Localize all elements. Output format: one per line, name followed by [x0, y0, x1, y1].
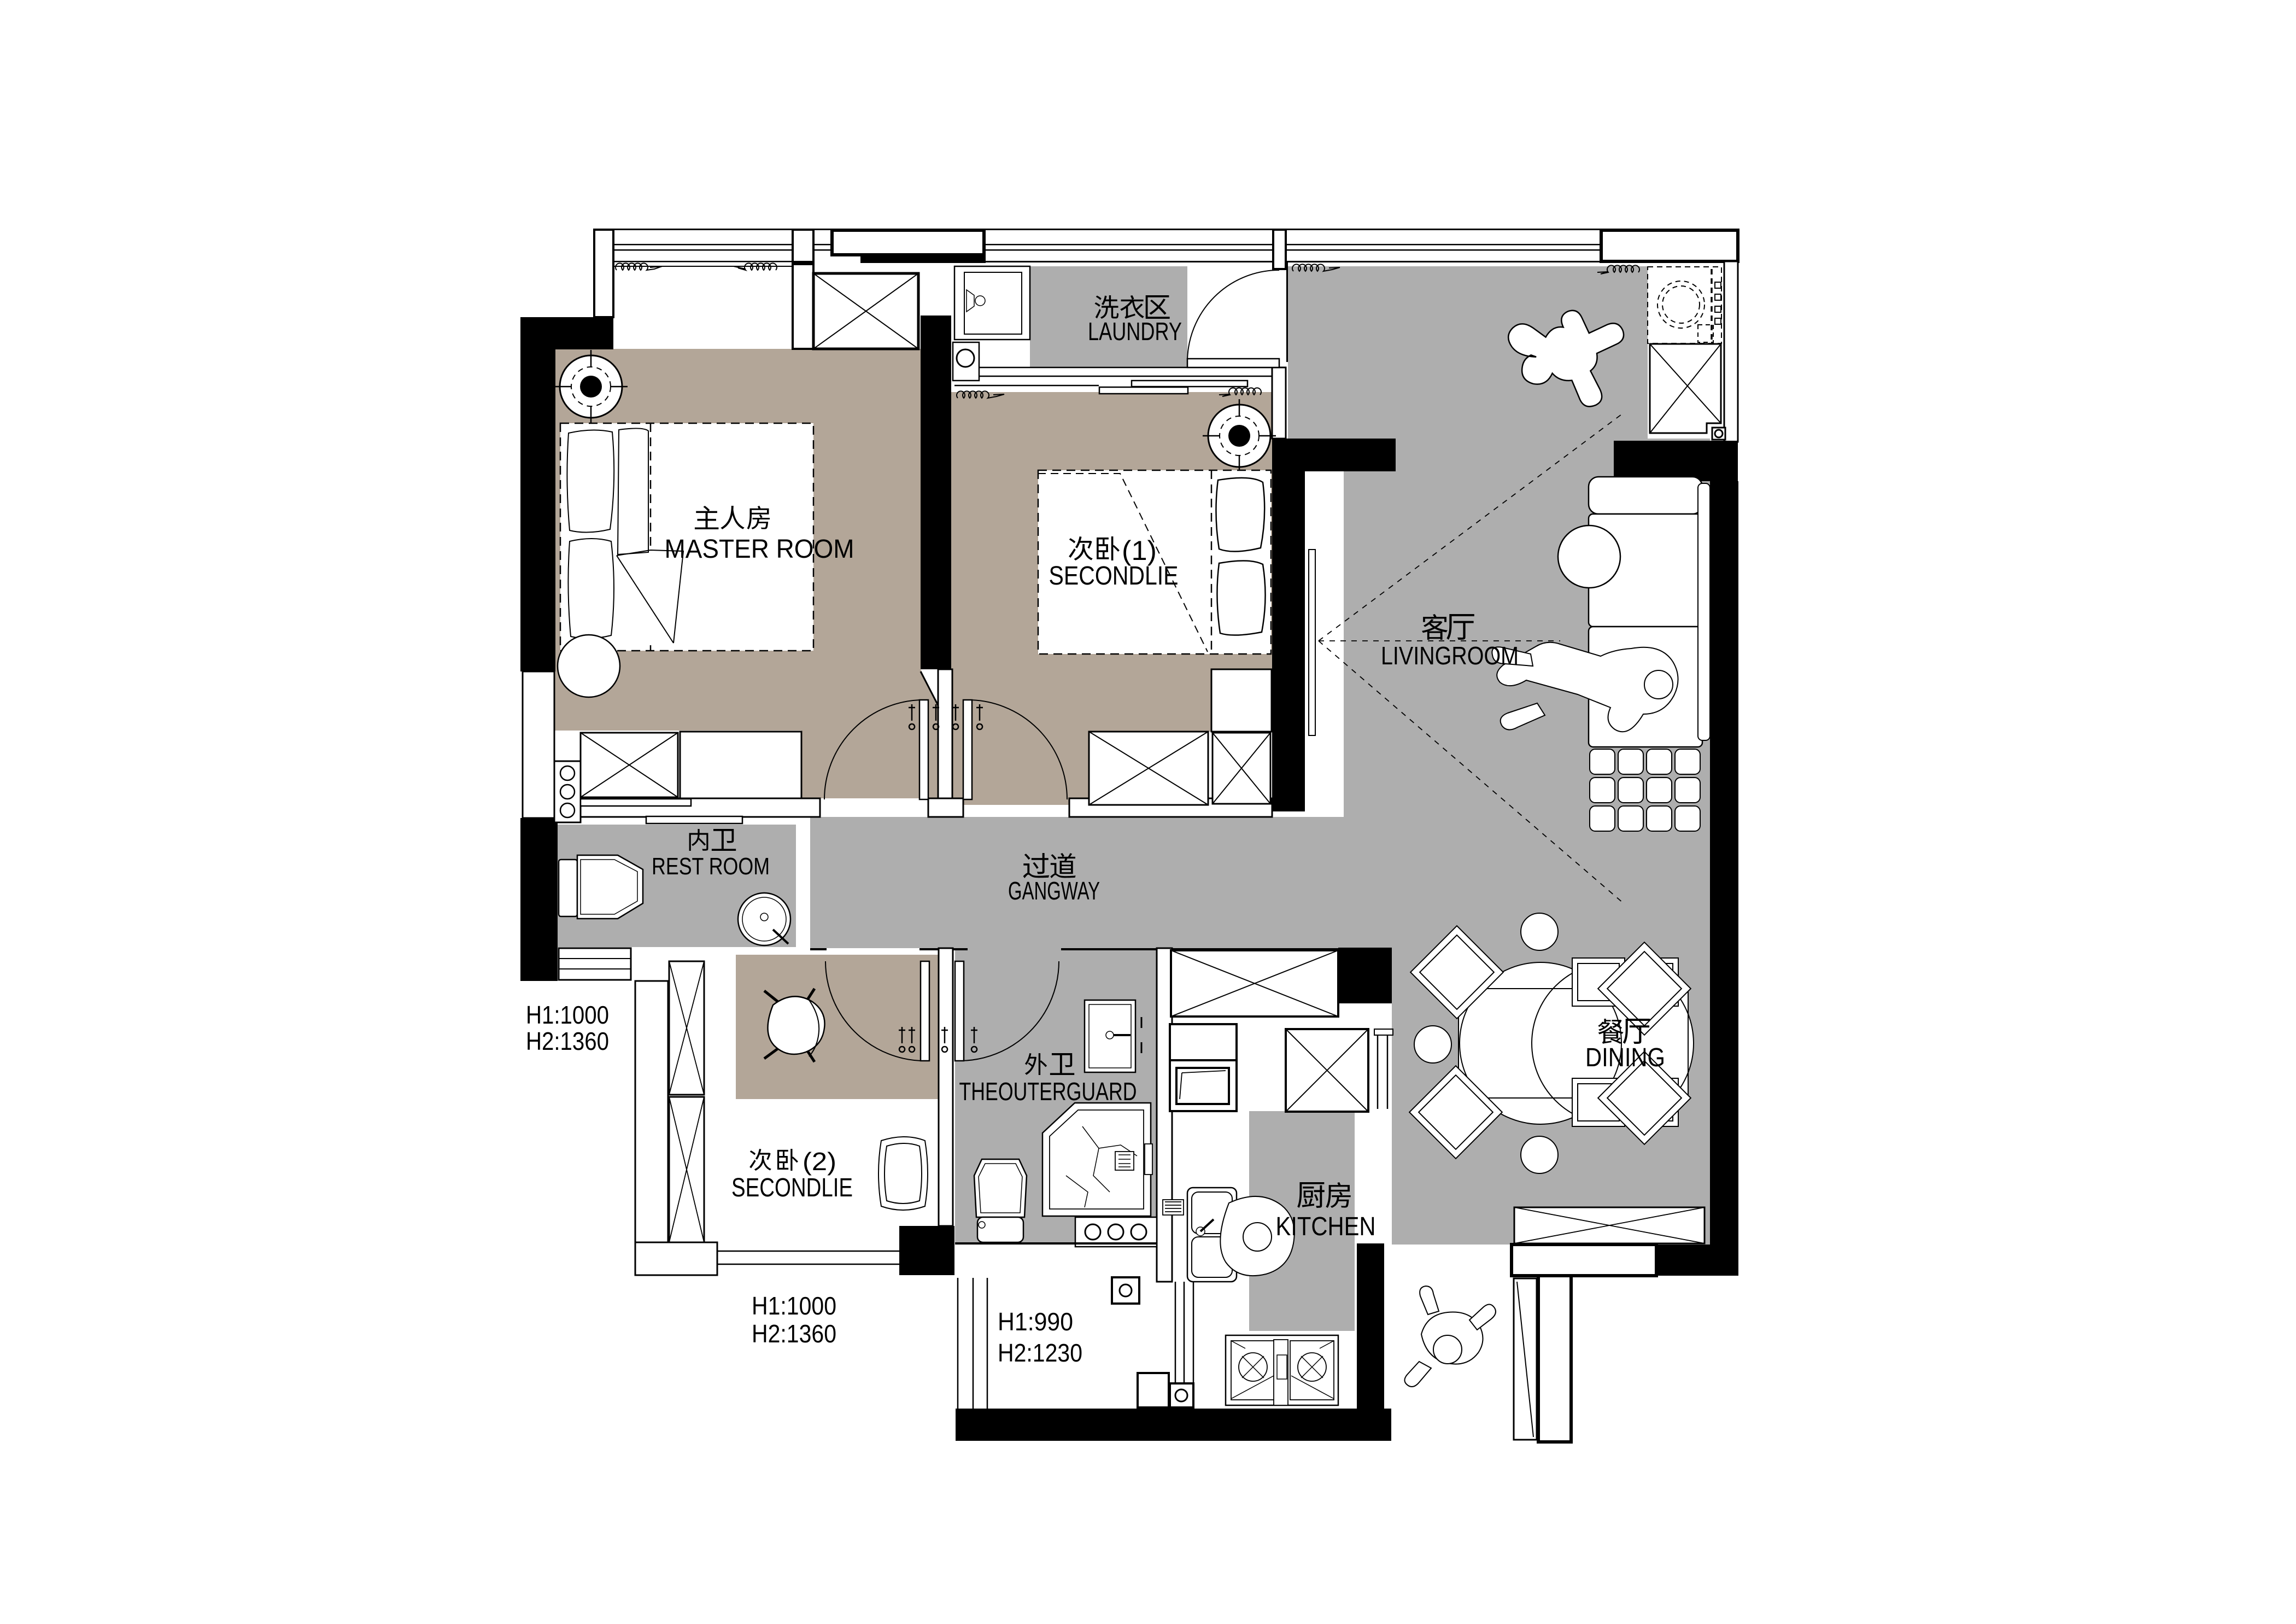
- svg-text:H2:1360: H2:1360: [526, 1027, 609, 1055]
- svg-text:H1:990: H1:990: [998, 1307, 1073, 1336]
- svg-text:H1:1000: H1:1000: [752, 1292, 836, 1320]
- svg-text:DINING: DINING: [1585, 1043, 1665, 1072]
- svg-text:SECONDLIE: SECONDLIE: [731, 1173, 853, 1202]
- svg-text:H2:1230: H2:1230: [998, 1339, 1082, 1367]
- svg-text:REST ROOM: REST ROOM: [652, 853, 770, 880]
- svg-text:KITCHEN: KITCHEN: [1276, 1212, 1376, 1241]
- svg-text:LIVINGROOM: LIVINGROOM: [1381, 641, 1519, 670]
- svg-text:H1:1000: H1:1000: [526, 1001, 609, 1029]
- svg-text:GANGWAY: GANGWAY: [1008, 877, 1100, 905]
- svg-text:MASTER ROOM: MASTER ROOM: [665, 535, 854, 564]
- svg-text:LAUNDRY: LAUNDRY: [1088, 317, 1182, 346]
- svg-text:SECONDLIE: SECONDLIE: [1049, 562, 1179, 591]
- svg-text:(2): (2): [803, 1147, 836, 1176]
- svg-text:THEOUTERGUARD: THEOUTERGUARD: [959, 1077, 1137, 1106]
- svg-text:H2:1360: H2:1360: [752, 1319, 836, 1348]
- svg-text:(1): (1): [1122, 535, 1157, 566]
